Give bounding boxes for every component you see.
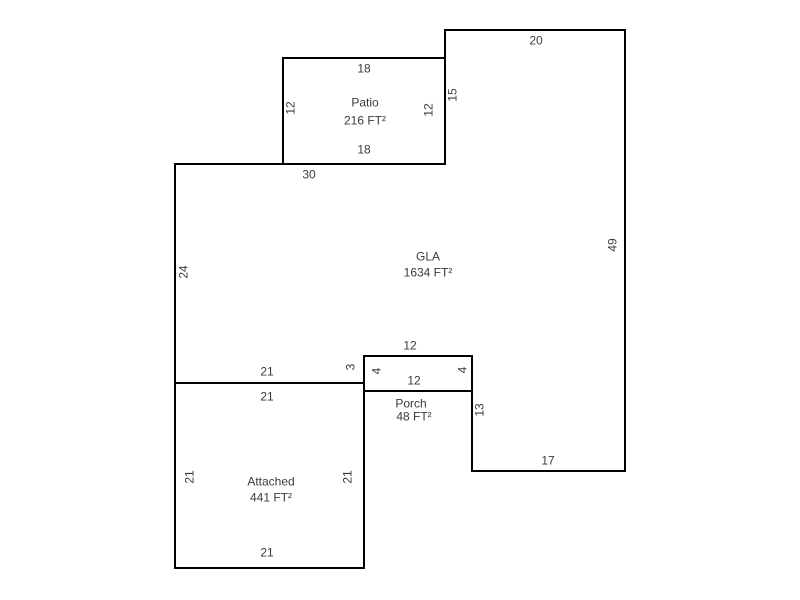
dim-attached-top-21: 21 bbox=[260, 391, 273, 404]
wall-bottom-17 bbox=[471, 470, 626, 472]
dim-gla-top-30: 30 bbox=[302, 169, 315, 182]
patio-area: 216 FT² bbox=[344, 115, 386, 128]
porch-area: 48 FT² bbox=[396, 411, 431, 424]
dim-right-49: 49 bbox=[607, 238, 620, 251]
gla-area: 1634 FT² bbox=[404, 267, 453, 280]
wall-patio-top-18 bbox=[282, 57, 446, 59]
wall-top-20 bbox=[444, 29, 626, 31]
dim-gla-left-24: 24 bbox=[178, 265, 191, 278]
dim-patio-left-12: 12 bbox=[285, 101, 298, 114]
wall-attached-left-21 bbox=[174, 382, 176, 569]
dim-seg-3: 3 bbox=[345, 364, 358, 371]
dim-attached-left-21: 21 bbox=[184, 470, 197, 483]
wall-gla-top-30 bbox=[174, 163, 446, 165]
dim-porch-right-4: 4 bbox=[457, 367, 470, 374]
dim-seg-13: 13 bbox=[474, 403, 487, 416]
dim-porch-left-4: 4 bbox=[371, 368, 384, 375]
dim-seg-15: 15 bbox=[447, 88, 460, 101]
floor-plan-sketch: 20 18 12 12 15 18 30 24 49 12 3 4 12 4 2… bbox=[0, 0, 800, 600]
dim-attached-bottom-21: 21 bbox=[260, 547, 273, 560]
dim-porch-inner-12: 12 bbox=[407, 375, 420, 388]
dim-bottom-17: 17 bbox=[541, 455, 554, 468]
wall-porch-bottom-12 bbox=[363, 390, 473, 392]
dim-patio-top-18: 18 bbox=[357, 63, 370, 76]
dim-porch-top-12: 12 bbox=[403, 340, 416, 353]
dim-top-20: 20 bbox=[529, 35, 542, 48]
gla-label: GLA bbox=[416, 251, 440, 264]
wall-right-49 bbox=[624, 29, 626, 472]
wall-attached-right-21 bbox=[363, 355, 365, 569]
attached-area: 441 FT² bbox=[250, 492, 292, 505]
wall-gla-attached-boundary-21 bbox=[174, 382, 365, 384]
attached-label: Attached bbox=[247, 476, 294, 489]
dim-patio-bottom-18: 18 bbox=[357, 144, 370, 157]
patio-label: Patio bbox=[351, 97, 378, 110]
dim-patio-right-12: 12 bbox=[423, 103, 436, 116]
dim-attached-right-21: 21 bbox=[342, 470, 355, 483]
dim-gla-bottom-21: 21 bbox=[260, 366, 273, 379]
wall-attached-bottom-21 bbox=[174, 567, 365, 569]
wall-porch-top-12 bbox=[363, 355, 473, 357]
